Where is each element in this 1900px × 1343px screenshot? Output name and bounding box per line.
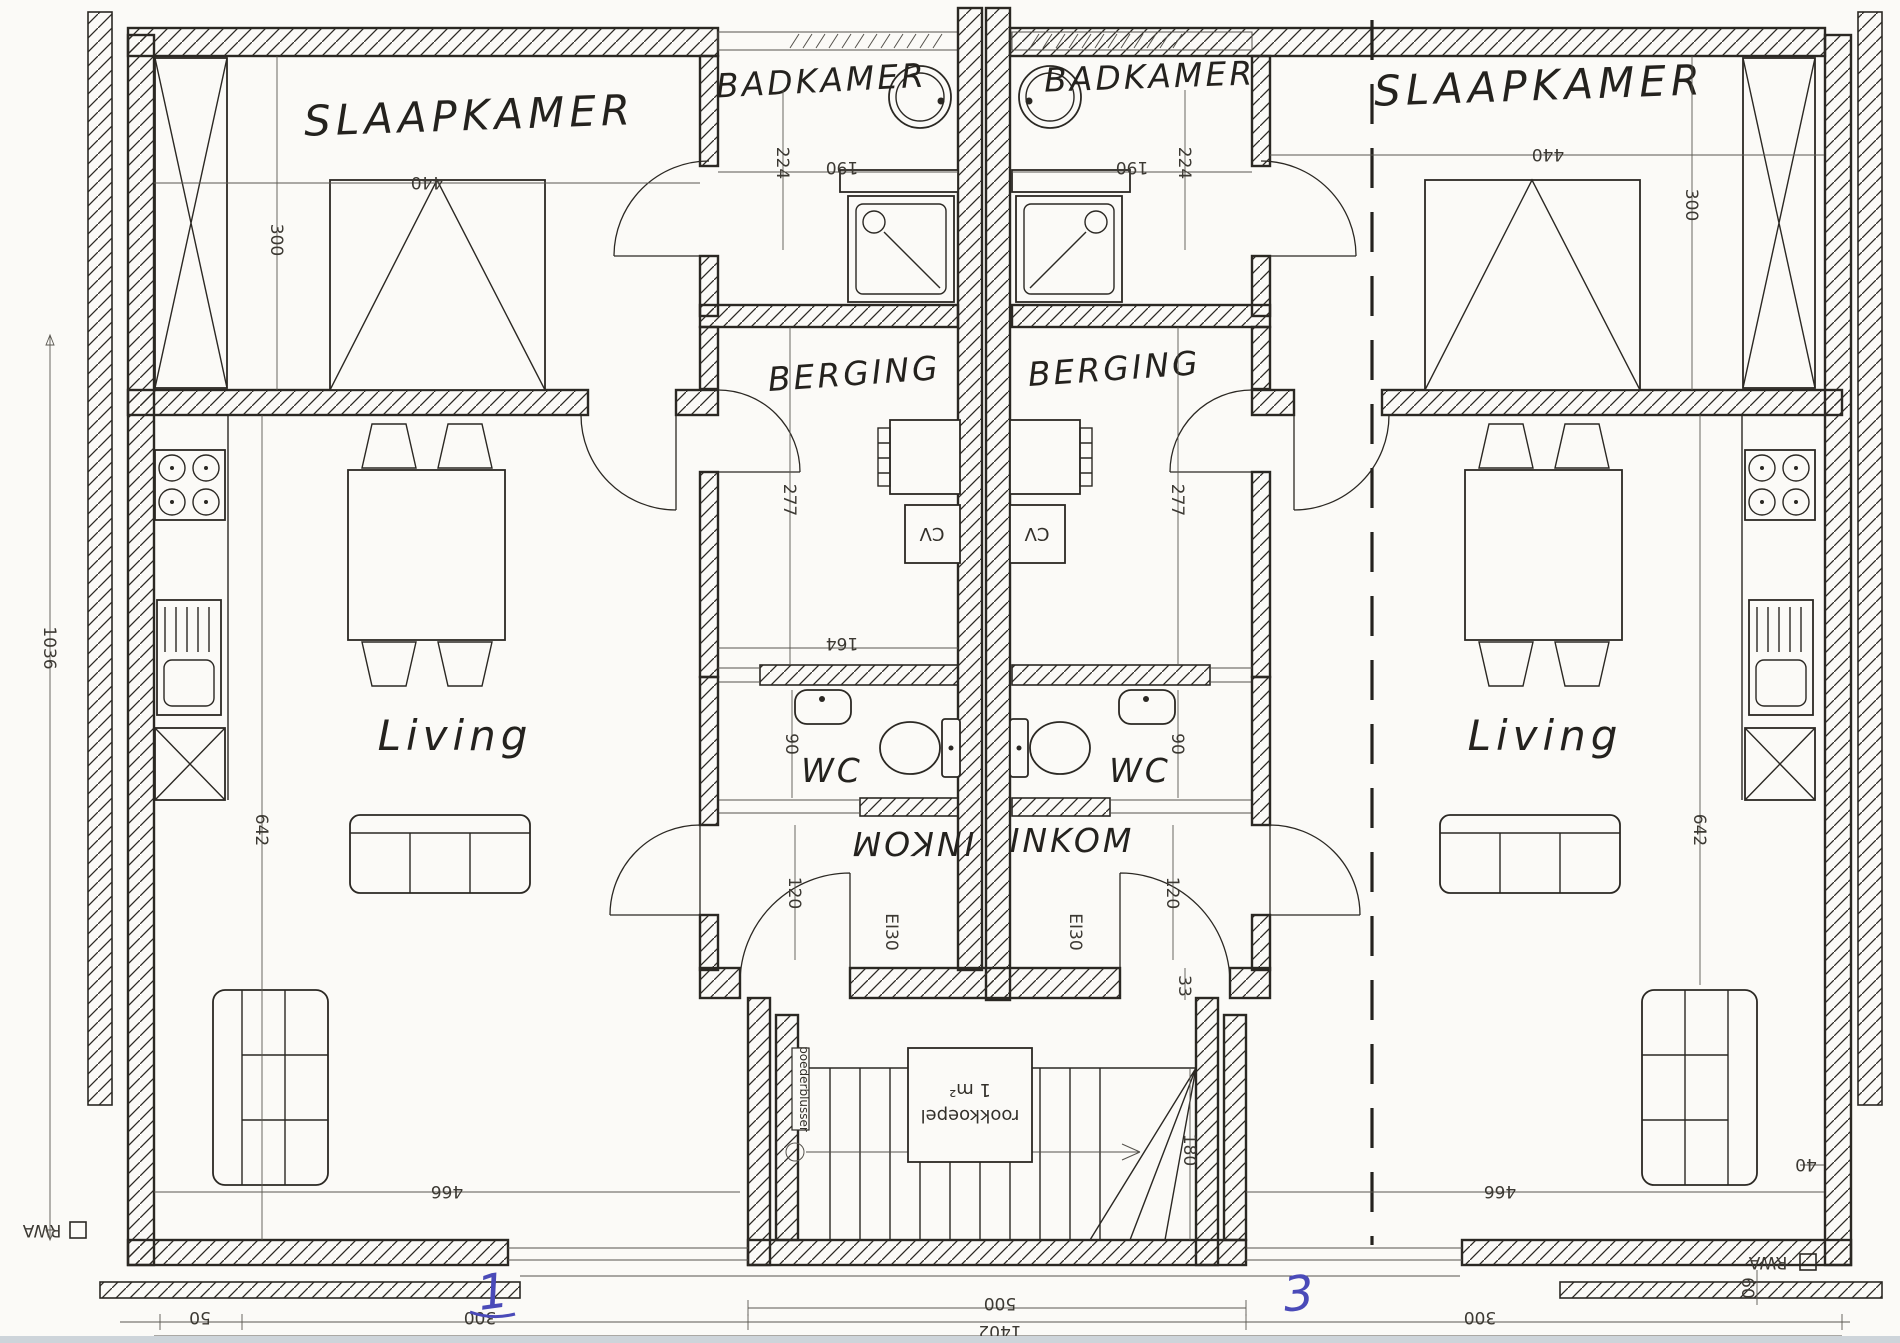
- door-slaapkamer-left: [581, 415, 676, 510]
- terrace-wall-right: [1560, 1282, 1882, 1298]
- poederblusser-label: poederblusser: [797, 1046, 811, 1132]
- dining-table-left: [348, 424, 505, 686]
- wc-bottom-frame-left: [718, 800, 860, 813]
- inkom-wall-left-a: [700, 677, 718, 825]
- stairhall-bottom-wall: [748, 1240, 1246, 1265]
- dim-berging-width-left: 164: [826, 633, 858, 653]
- dim-badkamer-depth-left: 224: [772, 147, 792, 179]
- outer-wall-right-main: [1825, 35, 1851, 1265]
- dim-slaapkamer-width-right: 440: [1532, 144, 1564, 164]
- unit-numbers: 1 3: [470, 1262, 1316, 1323]
- dim-slaapkamer-depth-left: 300: [266, 224, 286, 256]
- inkom-wall-right-b: [1252, 915, 1270, 970]
- washer-left: [878, 420, 960, 494]
- toilet-right: [1010, 719, 1090, 777]
- inkom-wall-left-b: [700, 915, 718, 970]
- label-wc-left: WC: [801, 751, 863, 790]
- floor-plan-page: CV CV rookkoepel 1 m² poederblusser SLAA…: [0, 0, 1900, 1343]
- furniture-left-unit: [155, 58, 545, 1185]
- dim-badkamer-depth-right: 224: [1174, 147, 1194, 179]
- facade-wall-left: [128, 1240, 508, 1265]
- wardrobe-right: [1743, 58, 1815, 388]
- dim-living-width-left: 466: [431, 1181, 463, 1201]
- loveseat-left: [350, 815, 530, 893]
- dim-slaapkamer-depth-right: 300: [1681, 189, 1701, 221]
- toilet-left: [880, 719, 960, 777]
- door-badkamer-right: [1261, 161, 1356, 256]
- wc-top-wall-right: [1012, 665, 1210, 685]
- shower-left: [840, 170, 958, 302]
- door-badkamer-left: [614, 161, 709, 256]
- wc-bottom-wall-left: [860, 798, 958, 816]
- label-berging-right: BERGING: [1027, 343, 1202, 394]
- wardrobe-left: [155, 58, 227, 388]
- slaapkamer-bottom-wall-right: [1382, 390, 1842, 415]
- loveseat-right: [1440, 815, 1620, 893]
- wc-top-wall-left: [760, 665, 958, 685]
- label-ei30-right: EI30: [1065, 913, 1085, 950]
- party-wall-right-leaf: [986, 8, 1010, 1000]
- terrace-wall-left: [100, 1282, 520, 1298]
- label-slaapkamer-left: SLAAPKAMER: [303, 85, 636, 146]
- dim-living-width-right: 466: [1484, 1181, 1516, 1201]
- dim-stair-width: 180: [1179, 1134, 1199, 1166]
- label-inkom-left: INKOM: [850, 824, 975, 863]
- poederblusser-extinguisher: poederblusser: [792, 1046, 811, 1132]
- rwa-label-right: RWA: [1748, 1252, 1787, 1272]
- label-inkom-right: INKOM: [1010, 821, 1135, 860]
- cabinet-right: [1745, 728, 1815, 800]
- cabinet-left: [155, 728, 225, 800]
- outer-wall-left-thin: [88, 12, 112, 1105]
- berging-wall-right-a: [1252, 327, 1270, 389]
- badkamer-bottom-wall-right: [1012, 305, 1270, 327]
- stove-left: [155, 450, 225, 520]
- bed-right: [1425, 180, 1640, 390]
- door-berging-right: [1170, 390, 1252, 472]
- dim-rwa-offset-right: 60: [1737, 1277, 1757, 1299]
- door-slaapkamer-right: [1294, 415, 1389, 510]
- stairhall-wall-right-outer: [1224, 1015, 1246, 1240]
- rwa-label-left: RWA: [22, 1220, 61, 1240]
- cv-boiler-left: CV: [905, 505, 960, 563]
- dim-inkom-width-right: 120: [1162, 877, 1182, 909]
- wc-sink-right: [1119, 690, 1175, 724]
- label-berging-left: BERGING: [767, 348, 942, 399]
- unit-number-right: 3: [1281, 1265, 1316, 1323]
- badkamer-bottom-wall-left: [700, 305, 958, 327]
- stairhall-wall-left-outer: [748, 998, 770, 1265]
- couch-left: [213, 990, 328, 1185]
- berging-wall-left-a: [700, 327, 718, 389]
- wc-bottom-wall-right: [1012, 798, 1110, 816]
- rookkoepel-skylight: rookkoepel 1 m²: [908, 1048, 1032, 1162]
- door-berging-left: [718, 390, 800, 472]
- dim-living-depth-left: 642: [251, 814, 271, 846]
- wc-bottom-frame-right: [1110, 800, 1252, 813]
- rookkoepel-area-label: 1 m²: [949, 1079, 991, 1100]
- slaapkamer-bottom-wall-right-b: [1252, 390, 1294, 415]
- rwa-square-left: [70, 1222, 86, 1238]
- scan-edge: [0, 1336, 1900, 1343]
- dim-berging-depth-right: 277: [1167, 484, 1187, 516]
- wc-sink-left: [795, 690, 851, 724]
- cv-boiler-right: CV: [1010, 505, 1065, 563]
- stairhall-wall-right-inner: [1196, 998, 1218, 1265]
- shower-right: [1012, 170, 1130, 302]
- wc-top-frame-right: [1210, 668, 1252, 682]
- outer-wall-left-main: [128, 35, 154, 1265]
- inkom-bottom-wall-center: [850, 968, 1120, 998]
- stove-right: [1745, 450, 1815, 520]
- dim-facade-small-left: 50: [189, 1307, 211, 1327]
- dim-berging-depth-left: 277: [779, 484, 799, 516]
- dim-living-depth-right: 642: [1689, 814, 1709, 846]
- berging-wall-left-b: [700, 472, 718, 677]
- label-badkamer-right: BADKAMER: [1043, 53, 1255, 99]
- furniture-right-unit: [1425, 58, 1815, 1185]
- dim-wc-width-left: 90: [781, 733, 801, 755]
- washer-right: [1010, 420, 1092, 494]
- dim-inkom-width-left: 120: [784, 877, 804, 909]
- slaapkamer-bottom-wall-left-b: [676, 390, 718, 415]
- label-living-left: Living: [378, 711, 533, 760]
- unit-number-left: 1: [474, 1262, 512, 1322]
- label-ei30-left: EI30: [881, 913, 901, 950]
- cv-label-left: CV: [919, 523, 945, 544]
- staircase: rookkoepel 1 m² poederblusser: [786, 1046, 1196, 1240]
- dining-table-right: [1465, 424, 1622, 686]
- label-living-right: Living: [1468, 711, 1623, 760]
- bed-left: [330, 180, 545, 390]
- dim-facade-right: 300: [1464, 1307, 1496, 1327]
- berging-wall-right-b: [1252, 472, 1270, 677]
- cv-label-right: CV: [1024, 523, 1050, 544]
- dim-wc-width-right: 90: [1167, 733, 1187, 755]
- door-inkom-left: [610, 825, 700, 915]
- inkom-wall-right-a: [1252, 677, 1270, 825]
- window-ticks-left: [790, 34, 942, 48]
- dim-hall-width: 500: [984, 1293, 1016, 1313]
- top-wall-left-unit: [128, 28, 718, 56]
- kitchen-sink-right: [1749, 600, 1813, 715]
- label-slaapkamer-right: SLAAPKAMER: [1373, 55, 1706, 116]
- label-wc-right: WC: [1109, 751, 1171, 790]
- inkom-bottom-wall-right-a: [1230, 968, 1270, 998]
- kitchen-sink-left: [157, 600, 221, 715]
- dim-corner-right: 40: [1795, 1154, 1817, 1174]
- outer-wall-right-thin: [1858, 12, 1882, 1105]
- dim-badkamer-width-left: 190: [826, 157, 858, 177]
- floor-plan-drawing: CV CV rookkoepel 1 m² poederblusser SLAA…: [0, 0, 1900, 1343]
- wc-top-frame-left: [718, 668, 760, 682]
- dim-badkamer-width-right: 190: [1116, 157, 1148, 177]
- rookkoepel-label: rookkoepel: [921, 1105, 1020, 1126]
- slaapkamer-bottom-wall-left: [128, 390, 588, 415]
- facade-wall-right: [1462, 1240, 1851, 1265]
- dim-wall-offset-right: 33: [1174, 975, 1194, 997]
- dim-total-depth-left: 1036: [39, 626, 59, 669]
- dim-slaapkamer-width-left: 440: [411, 172, 443, 192]
- door-inkom-right: [1270, 825, 1360, 915]
- inkom-bottom-wall-left-a: [700, 968, 740, 998]
- couch-right: [1642, 990, 1757, 1185]
